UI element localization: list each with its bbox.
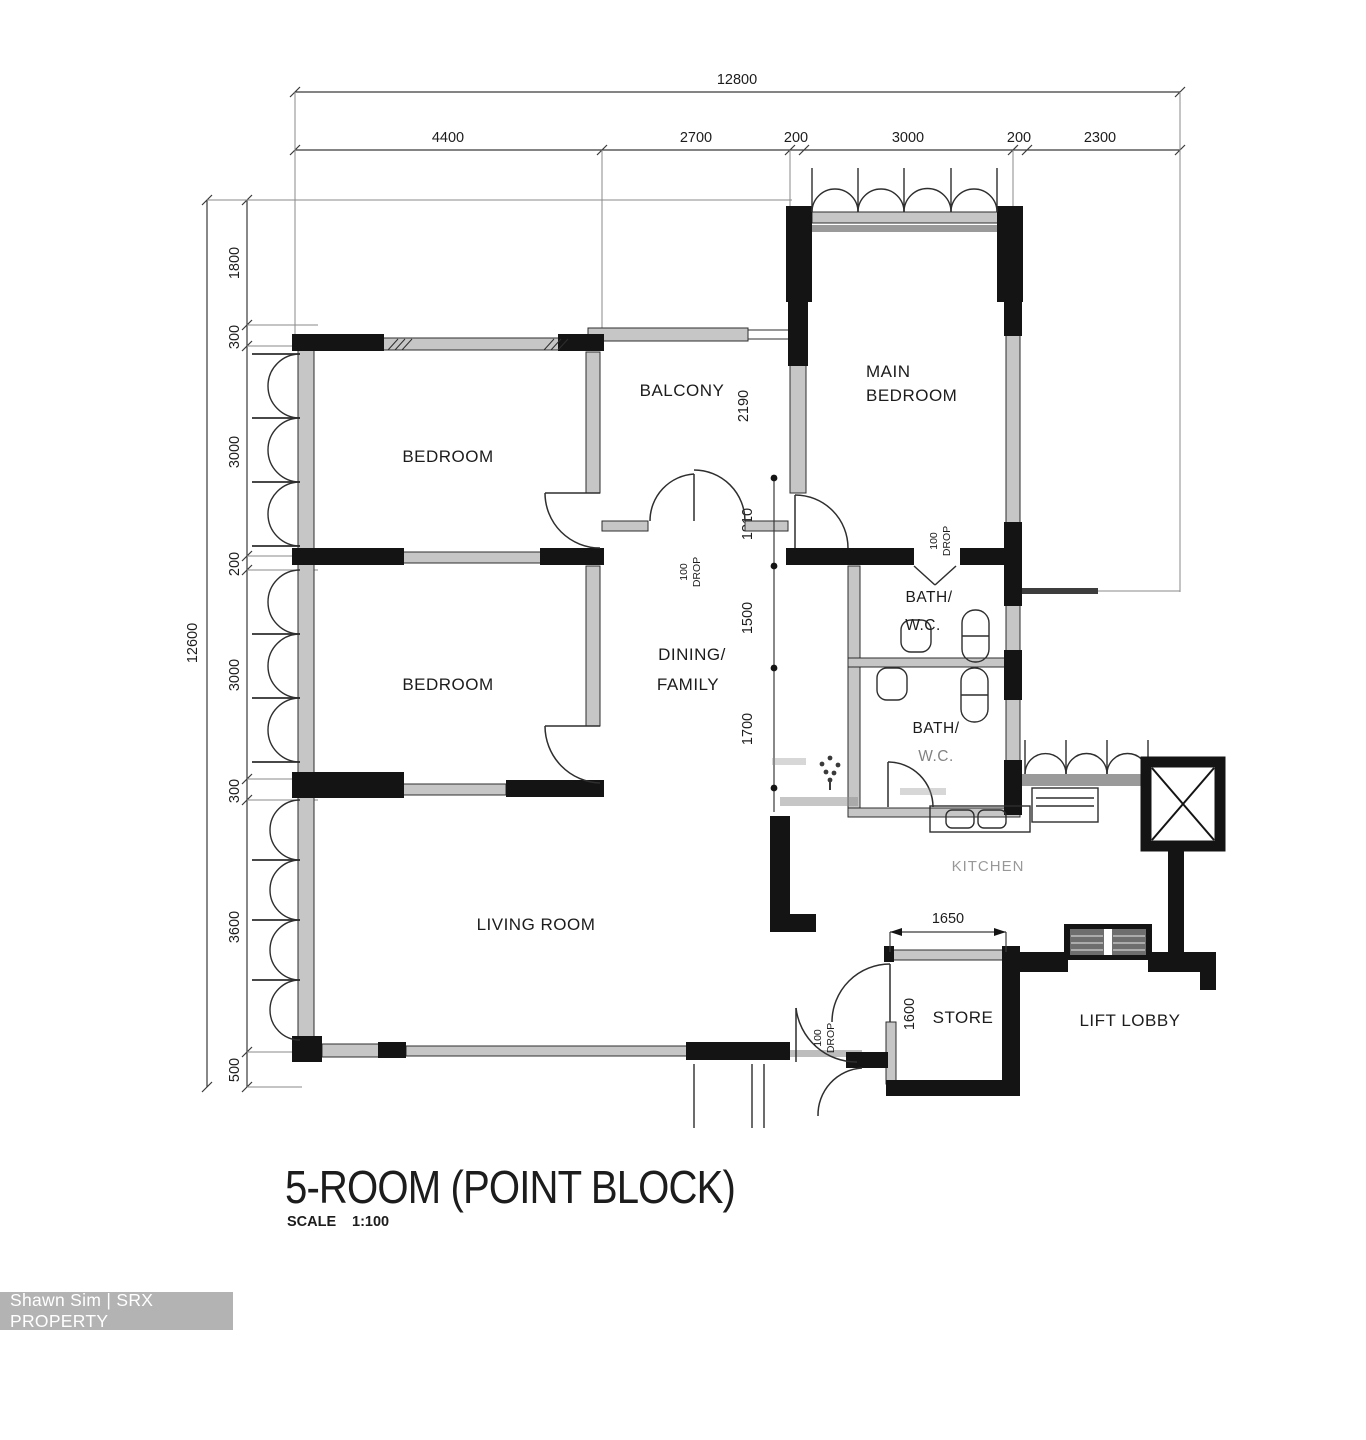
interior-dim: 1500 <box>740 602 756 634</box>
room-label-kitchen: KITCHEN <box>952 858 1025 875</box>
kitchen-width-dim: 1650 <box>932 911 964 927</box>
room-label-main-bedroom: BEDROOM <box>866 386 957 405</box>
left-seg-dim: 3600 <box>227 911 243 943</box>
room-label-bath-upper: W.C. <box>905 617 941 634</box>
basin-icon <box>877 668 907 700</box>
left-seg-dim: 3000 <box>227 659 243 691</box>
kitchen-counter <box>1032 788 1098 822</box>
drop-annotation: 100 <box>678 563 690 581</box>
room-label-bedroom-bottom: BEDROOM <box>402 675 493 694</box>
room-label-bath-upper: BATH/ <box>906 589 953 606</box>
drop-annotation: DROP <box>825 1023 837 1053</box>
drop-annotation: DROP <box>941 526 953 556</box>
walls <box>292 206 1216 1096</box>
floor-plan-drawing: 12800 4400 2700 200 3000 200 2300 12600 … <box>0 0 1366 1440</box>
drop-annotation: 100 <box>812 1029 824 1047</box>
left-seg-dim: 500 <box>227 1058 243 1082</box>
drop-annotation: DROP <box>691 557 703 587</box>
balcony-depth-dim: 2190 <box>736 390 752 422</box>
door-swings <box>545 470 956 1116</box>
top-seg-dim: 2700 <box>680 130 712 146</box>
room-label-dining: DINING/ <box>658 645 726 664</box>
left-seg-dim: 1800 <box>227 247 243 279</box>
title-block: 5-ROOM (POINT BLOCK) SCALE 1:100 <box>285 1161 735 1230</box>
watermark-bar: Shawn Sim | SRX PROPERTY <box>0 1292 233 1330</box>
store-depth-dim: 1600 <box>902 998 918 1030</box>
room-label-bath-lower: BATH/ <box>913 720 960 737</box>
planter-symbol <box>820 756 841 790</box>
lift-doors-icon <box>1064 924 1152 960</box>
room-label-balcony: BALCONY <box>640 381 725 400</box>
room-label-store: STORE <box>933 1008 994 1027</box>
floor-plan-page: 12800 4400 2700 200 3000 200 2300 12600 … <box>0 0 1366 1440</box>
left-seg-dim: 3000 <box>227 436 243 468</box>
overall-width-dim: 12800 <box>717 72 757 88</box>
room-label-main-bedroom: MAIN <box>866 362 911 381</box>
room-label-dining: FAMILY <box>657 675 719 694</box>
top-seg-dim: 200 <box>784 130 808 146</box>
drop-annotation: 100 <box>928 532 940 550</box>
left-seg-dim: 200 <box>227 552 243 576</box>
overall-height-dim: 12600 <box>185 623 201 663</box>
kitchen-dim-line <box>890 928 1006 952</box>
room-label-lift-lobby: LIFT LOBBY <box>1079 1011 1180 1030</box>
room-label-bedroom-top: BEDROOM <box>402 447 493 466</box>
interior-dim: 1700 <box>740 713 756 745</box>
top-seg-dim: 200 <box>1007 130 1031 146</box>
left-seg-dim: 300 <box>227 779 243 803</box>
top-seg-dim: 2300 <box>1084 130 1116 146</box>
dimension-labels: 12800 4400 2700 200 3000 200 2300 12600 … <box>185 72 1116 1082</box>
plan-title: 5-ROOM (POINT BLOCK) <box>285 1161 735 1213</box>
room-label-bath-lower: W.C. <box>918 748 954 765</box>
lift-shaft <box>1146 762 1220 846</box>
top-seg-dim: 4400 <box>432 130 464 146</box>
top-seg-dim: 3000 <box>892 130 924 146</box>
left-seg-dim: 300 <box>227 325 243 349</box>
watermark-text: Shawn Sim | SRX PROPERTY <box>0 1290 233 1332</box>
plan-scale-word: SCALE <box>287 1214 336 1230</box>
room-label-living: LIVING ROOM <box>477 915 596 934</box>
dimension-lines <box>202 87 1185 1092</box>
plan-scale-value: 1:100 <box>352 1214 389 1230</box>
